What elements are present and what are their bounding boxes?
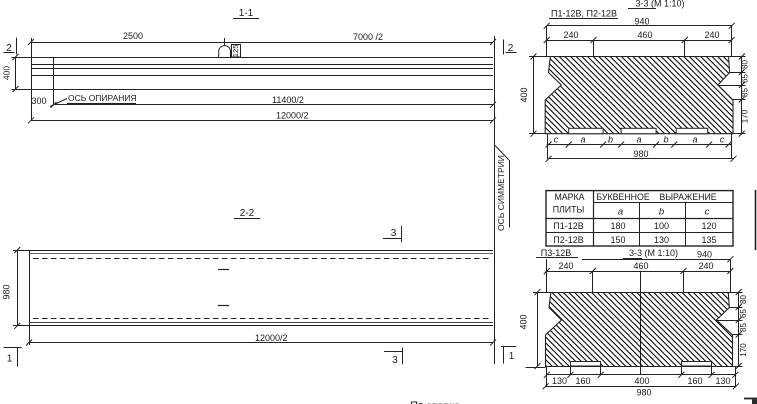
svg-text:170: 170 [741, 109, 750, 123]
svg-text:160: 160 [575, 376, 590, 386]
svg-text:c: c [705, 207, 710, 218]
svg-text:240: 240 [704, 30, 719, 40]
svg-text:12000/2: 12000/2 [276, 111, 309, 121]
svg-text:1: 1 [509, 351, 515, 362]
svg-text:85: 85 [739, 323, 748, 332]
svg-text:65: 65 [739, 309, 748, 318]
svg-text:П1-12В: П1-12В [553, 221, 584, 231]
svg-text:По главке: По главке [410, 400, 460, 404]
svg-text:150: 150 [610, 235, 625, 245]
svg-text:b: b [659, 207, 664, 218]
svg-text:b: b [608, 135, 613, 145]
svg-text:c: c [720, 135, 725, 145]
svg-text:85: 85 [741, 88, 750, 97]
svg-text:940: 940 [697, 250, 712, 260]
svg-text:3-3 (М 1:10): 3-3 (М 1:10) [629, 248, 678, 258]
svg-text:130: 130 [552, 376, 567, 386]
svg-text:a: a [692, 135, 697, 145]
svg-text:460: 460 [637, 30, 652, 40]
svg-text:2500: 2500 [123, 31, 143, 41]
svg-text:120: 120 [701, 221, 716, 231]
svg-text:1: 1 [7, 354, 13, 365]
svg-text:П2-12В: П2-12В [553, 235, 584, 245]
svg-text:400: 400 [519, 314, 529, 329]
svg-text:ОСЬ СИММЕТРИИ: ОСЬ СИММЕТРИИ [496, 155, 506, 231]
svg-text:65: 65 [741, 74, 750, 83]
svg-text:П1-12В, П2-12В: П1-12В, П2-12В [551, 9, 617, 19]
svg-text:11400/2: 11400/2 [272, 95, 304, 105]
svg-text:7000 /2: 7000 /2 [353, 32, 383, 42]
svg-text:240: 240 [558, 261, 573, 271]
svg-text:980: 980 [636, 388, 651, 398]
svg-text:160: 160 [687, 376, 702, 386]
svg-text:135: 135 [701, 235, 716, 245]
svg-text:c: c [554, 135, 559, 145]
svg-text:400: 400 [519, 87, 529, 102]
svg-text:240: 240 [698, 261, 713, 271]
svg-text:400: 400 [2, 66, 12, 80]
svg-text:240: 240 [563, 30, 578, 40]
svg-text:3-3 (М 1:10): 3-3 (М 1:10) [635, 0, 684, 9]
svg-text:170: 170 [739, 343, 748, 357]
svg-text:980: 980 [2, 284, 12, 299]
svg-text:12000/2: 12000/2 [255, 333, 288, 343]
svg-text:125: 125 [231, 45, 240, 58]
svg-text:80: 80 [739, 295, 748, 304]
svg-text:БУКВЕННОЕ: БУКВЕННОЕ [596, 192, 650, 202]
svg-text:b: b [663, 135, 668, 145]
svg-text:3: 3 [391, 228, 397, 239]
svg-text:1-1: 1-1 [239, 8, 254, 19]
svg-text:a: a [636, 135, 641, 145]
svg-text:130: 130 [715, 376, 730, 386]
svg-text:П3-12В: П3-12В [541, 248, 572, 258]
svg-text:980: 980 [633, 149, 648, 159]
svg-text:80: 80 [741, 60, 750, 69]
svg-text:400: 400 [634, 376, 649, 386]
svg-text:130: 130 [654, 235, 669, 245]
svg-text:180: 180 [610, 221, 625, 231]
svg-text:3: 3 [392, 355, 398, 366]
svg-text:2-2: 2-2 [240, 208, 255, 219]
svg-text:460: 460 [633, 261, 648, 271]
svg-text:940: 940 [634, 17, 649, 27]
svg-text:300: 300 [31, 96, 46, 106]
svg-text:100: 100 [654, 221, 669, 231]
svg-text:ОСЬ ОПИРАНИЯ: ОСЬ ОПИРАНИЯ [68, 93, 137, 103]
svg-text:a: a [618, 207, 623, 218]
svg-text:ПЛИТЫ: ПЛИТЫ [553, 205, 585, 215]
svg-text:ВЫРАЖЕНИЕ: ВЫРАЖЕНИЕ [659, 192, 716, 202]
svg-text:a: a [580, 135, 585, 145]
svg-text:МАРКА: МАРКА [554, 192, 584, 202]
